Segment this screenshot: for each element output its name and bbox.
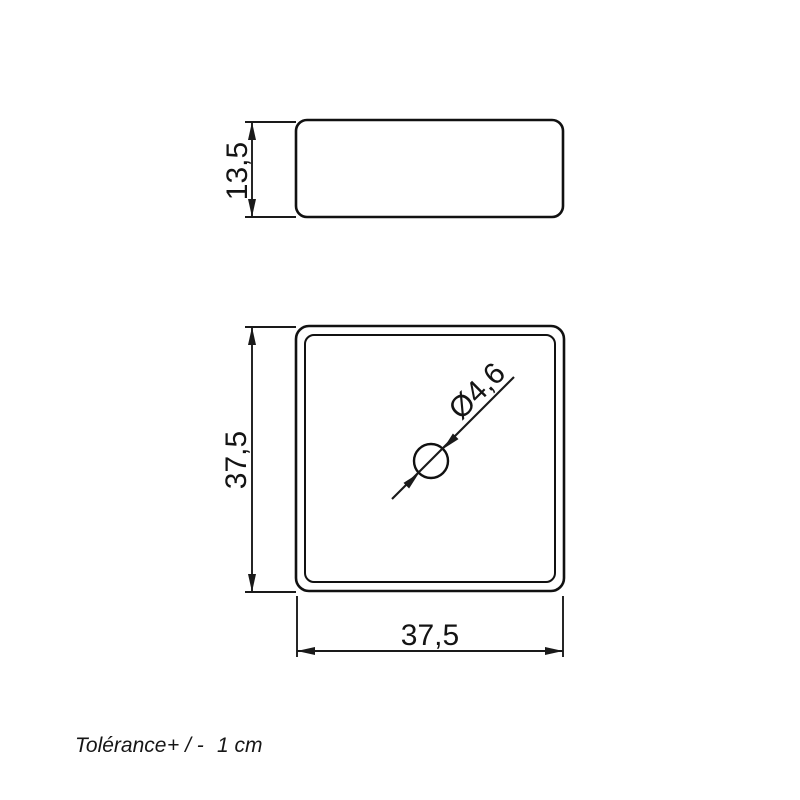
drawing-canvas: 13,5 Ø4,6 37,5	[0, 0, 800, 800]
dim-plan-height: 37,5	[220, 327, 296, 592]
dimension-value: 37,5	[220, 431, 253, 489]
dim-plan-width: 37,5	[297, 596, 563, 657]
tolerance-label: Tolérance	[75, 734, 166, 757]
hole-diameter-value: Ø4,6	[443, 357, 512, 426]
arrowhead-up-icon	[248, 327, 256, 345]
arrowhead-left-icon	[297, 647, 315, 655]
plan-view: Ø4,6 37,5 37,5	[220, 326, 564, 657]
dimension-value: 13,5	[221, 142, 254, 200]
arrowhead-down-icon	[248, 574, 256, 592]
tolerance-sign: + / -	[167, 734, 204, 757]
technical-drawing: 13,5 Ø4,6 37,5	[0, 0, 800, 800]
plan-view-inner-outline	[305, 335, 555, 582]
arrowhead-up-icon	[248, 122, 256, 140]
plan-view-outer-outline	[296, 326, 564, 591]
tolerance-value: 1 cm	[217, 734, 263, 757]
dim-side-height: 13,5	[221, 122, 296, 217]
arrowhead-right-icon	[545, 647, 563, 655]
side-view-outline	[296, 120, 563, 217]
tolerance-note: Tolérance + / - 1 cm	[75, 734, 263, 757]
side-view: 13,5	[221, 120, 563, 217]
arrowhead-down-icon	[248, 199, 256, 217]
dimension-value: 37,5	[401, 619, 459, 652]
dim-hole-diameter: Ø4,6	[392, 357, 514, 499]
